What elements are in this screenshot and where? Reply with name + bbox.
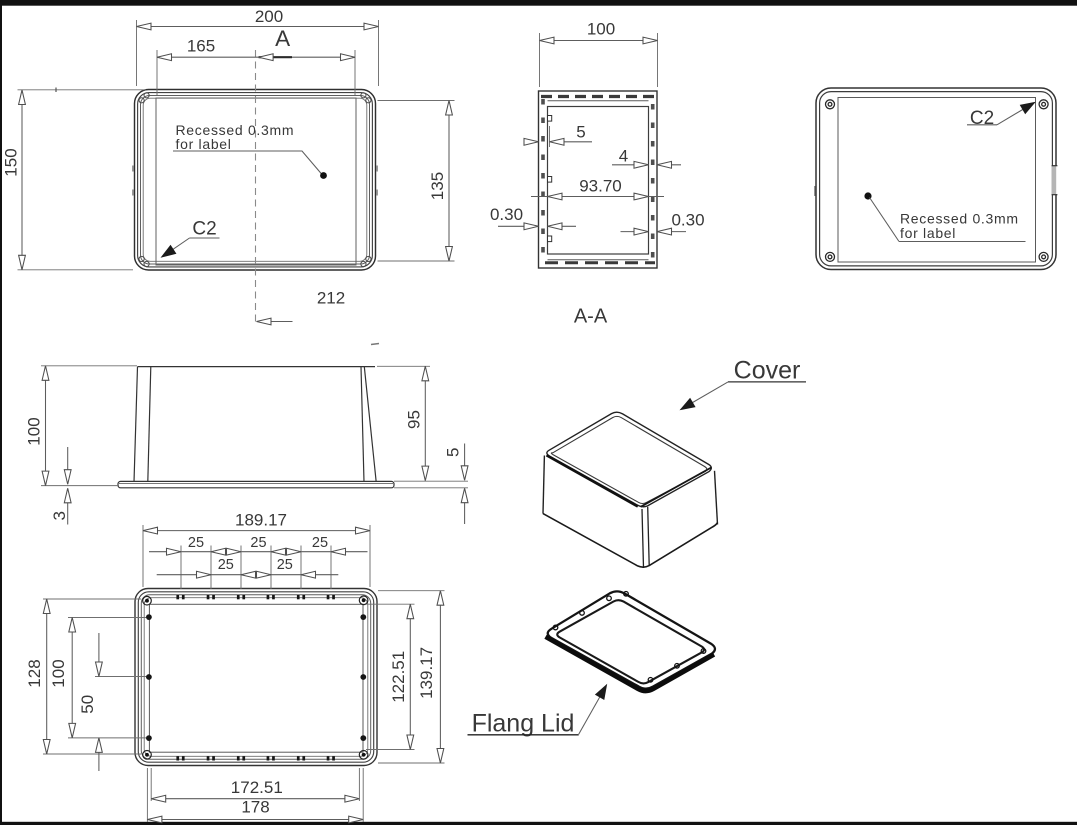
svg-text:128: 128 xyxy=(25,659,44,687)
svg-text:Flang Lid: Flang Lid xyxy=(472,710,575,738)
svg-text:A: A xyxy=(275,26,290,51)
svg-text:for label: for label xyxy=(176,136,232,152)
svg-text:50: 50 xyxy=(78,695,97,714)
svg-text:212: 212 xyxy=(317,288,345,307)
svg-text:4: 4 xyxy=(619,146,628,165)
svg-text:139.17: 139.17 xyxy=(417,647,436,699)
svg-text:200: 200 xyxy=(255,7,283,26)
svg-text:150: 150 xyxy=(1,148,20,176)
svg-text:5: 5 xyxy=(444,448,463,457)
svg-text:3: 3 xyxy=(50,511,69,520)
svg-text:25: 25 xyxy=(218,557,234,573)
svg-text:178: 178 xyxy=(241,798,269,817)
svg-text:100: 100 xyxy=(24,417,43,445)
svg-text:100: 100 xyxy=(49,659,68,687)
svg-text:0.30: 0.30 xyxy=(671,211,704,230)
svg-text:93.70: 93.70 xyxy=(579,176,622,195)
svg-text:C2: C2 xyxy=(970,108,994,129)
svg-text:172.51: 172.51 xyxy=(231,778,283,797)
svg-text:Cover: Cover xyxy=(734,357,801,385)
svg-text:100: 100 xyxy=(587,19,615,38)
svg-text:25: 25 xyxy=(277,557,293,573)
svg-text:189.17: 189.17 xyxy=(235,511,287,530)
svg-text:25: 25 xyxy=(188,535,204,551)
svg-text:122.51: 122.51 xyxy=(389,651,408,703)
svg-text:for label: for label xyxy=(900,225,956,241)
svg-text:0.30: 0.30 xyxy=(490,205,523,224)
svg-text:135: 135 xyxy=(428,172,447,200)
svg-text:25: 25 xyxy=(250,535,266,551)
svg-text:165: 165 xyxy=(187,36,215,55)
svg-text:C2: C2 xyxy=(192,218,216,239)
svg-text:5: 5 xyxy=(576,122,585,141)
svg-text:25: 25 xyxy=(312,535,328,551)
svg-text:A-A: A-A xyxy=(574,306,608,328)
svg-text:95: 95 xyxy=(405,410,424,429)
